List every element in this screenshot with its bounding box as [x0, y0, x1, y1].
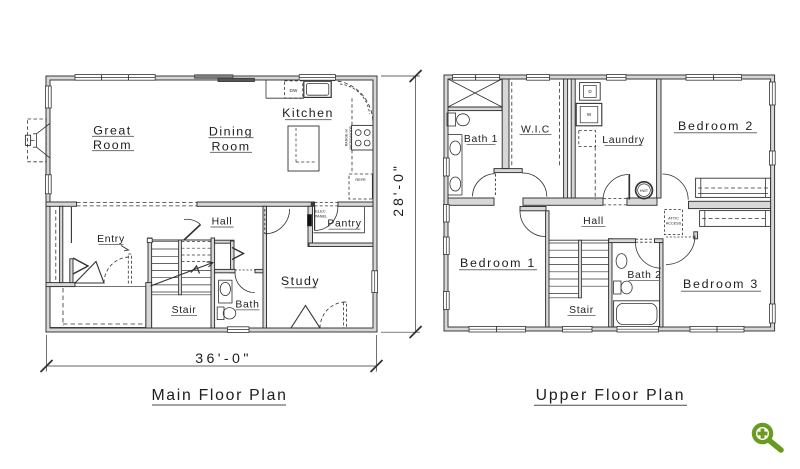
- svg-text:Stair: Stair: [569, 305, 594, 316]
- svg-text:W: W: [587, 112, 592, 117]
- svg-text:Room: Room: [211, 140, 250, 154]
- svg-text:Room: Room: [93, 138, 132, 152]
- svg-text:REFR: REFR: [355, 178, 366, 182]
- svg-text:Dining: Dining: [209, 124, 253, 138]
- svg-text:Entry: Entry: [97, 234, 125, 245]
- svg-text:DW: DW: [289, 88, 298, 93]
- svg-text:Hall: Hall: [583, 216, 604, 227]
- svg-text:PANEL: PANEL: [315, 214, 329, 219]
- svg-text:28'-0": 28'-0": [391, 163, 407, 217]
- svg-text:Bath 2: Bath 2: [627, 270, 661, 281]
- svg-text:Pantry: Pantry: [327, 219, 361, 230]
- svg-text:Bath 1: Bath 1: [464, 134, 498, 145]
- svg-text:Laundry: Laundry: [602, 135, 645, 146]
- svg-text:Bedroom 2: Bedroom 2: [678, 119, 754, 133]
- svg-text:ACCESS: ACCESS: [666, 222, 682, 226]
- svg-text:HWT: HWT: [640, 189, 649, 193]
- svg-text:Main Floor Plan: Main Floor Plan: [151, 387, 287, 404]
- svg-text:Bath: Bath: [235, 299, 259, 310]
- svg-text:W.I.C: W.I.C: [521, 124, 550, 135]
- svg-text:ATTIC: ATTIC: [668, 217, 679, 221]
- svg-text:Kitchen: Kitchen: [282, 106, 334, 120]
- svg-text:36'-0": 36'-0": [195, 351, 252, 367]
- svg-text:Study: Study: [281, 274, 320, 288]
- svg-text:Stair: Stair: [172, 305, 197, 316]
- svg-text:Bedroom 3: Bedroom 3: [683, 277, 759, 291]
- svg-text:Great: Great: [93, 124, 132, 138]
- svg-text:Hall: Hall: [212, 217, 233, 228]
- svg-text:MICRO/HOOD: MICRO/HOOD: [349, 125, 353, 149]
- svg-text:Upper Floor Plan: Upper Floor Plan: [536, 387, 686, 404]
- svg-text:Bedroom 1: Bedroom 1: [460, 256, 536, 270]
